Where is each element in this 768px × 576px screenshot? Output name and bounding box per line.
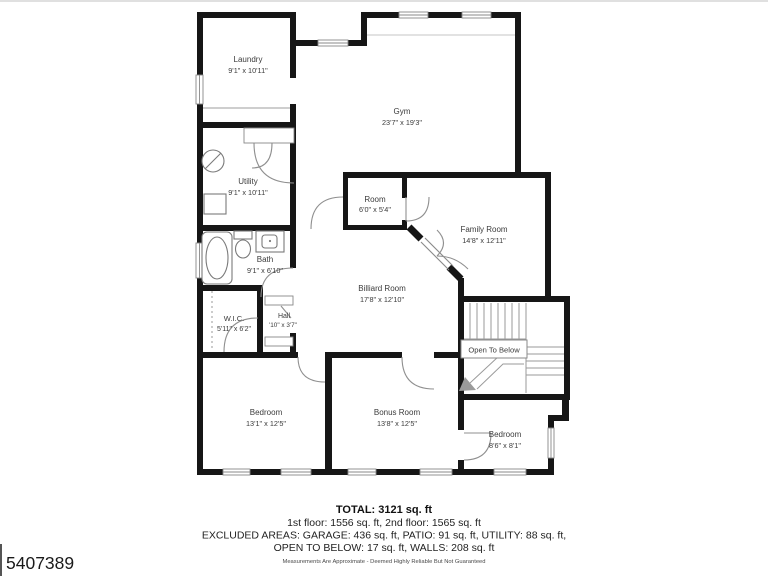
wall-right-jog-horizontal [548,415,569,421]
room-label-bonus: Bonus Room [374,408,421,417]
room-label-hall: Hall [278,313,291,320]
bonus-door-arc [402,357,434,389]
room-dims-bedroom-left: 13'1" x 12'5" [246,419,286,428]
wall-gym-bottom [343,172,515,178]
wall-room-bottom [343,225,407,230]
wall-bath-bottom [197,285,263,291]
wall-diagonal-lower [449,267,461,279]
toilet-bowl [236,240,251,258]
room-label-bedroom-left: Bedroom [250,408,283,417]
hall-opening-top [265,296,293,305]
wall-family-bottom [458,296,570,302]
room-label-bedroom-right: Bedroom [489,430,522,439]
mls-number: 5407389 [6,553,74,573]
window [420,469,452,475]
toilet-tank [234,231,252,239]
sink-drain [269,240,271,242]
walls [197,12,570,475]
room-label-family: Family Room [460,225,507,234]
bedroomright-door-arc [464,433,491,460]
room-label-laundry: Laundry [234,55,263,64]
wall-bedroomright-top [458,394,570,400]
room-label-gym: Gym [394,107,411,116]
wall-wic-right [257,285,263,358]
hall-opening-bottom [265,337,293,346]
room-dims-wic: 5'11" x 6'2" [217,326,251,333]
wall-billiard-bottom-mid [325,352,402,358]
diagonal-door-track-1 [421,242,449,270]
room-door-arc [406,197,429,221]
window [196,75,203,104]
wall-billiard-bottom-left [197,352,298,358]
room-dims-bath: 9'1" x 6'10" [247,266,283,275]
window [348,469,376,475]
window [548,428,554,458]
top-edge-line [0,0,768,2]
window [318,40,348,46]
wall-family-right [545,172,551,302]
room-dims-hall: '10" x 3'7" [269,322,297,329]
wall-gym-right [515,12,521,178]
diagonal-door-track-2 [425,238,453,266]
room-label-room: Room [364,195,386,204]
wall-bedroom-bonus-divider [325,352,332,475]
left-edge-line [0,544,2,576]
wall-laundry-top [197,12,296,18]
room-dims-room: 6'0" x 5'4" [359,205,391,214]
disclaimer-text: Measurements Are Approximate - Deemed Hi… [283,559,486,565]
wall-gym-top [361,12,521,18]
diagonal-door-arc-1 [437,230,444,256]
wall-room-right-upper [402,172,407,198]
window [494,469,526,475]
room-dims-billiard: 17'8" x 12'10" [360,295,404,304]
room-dims-bedroom-right: 8'6" x 8'1" [489,441,521,450]
window [281,469,311,475]
utility-alcove [244,128,294,143]
summary-excluded-1: EXCLUDED AREAS: GARAGE: 436 sq. ft, PATI… [202,530,566,542]
wall-room-left [343,172,348,230]
utility-appliance [204,194,226,214]
room-dims-family: 14'8" x 12'11" [462,236,506,245]
window [462,12,491,18]
window [399,12,428,18]
area-summary: TOTAL: 3121 sq. ft 1st floor: 1556 sq. f… [202,504,566,565]
wall-utility-top [197,122,296,128]
room-label-billiard: Billiard Room [358,284,406,293]
window [223,469,250,475]
room-dims-bonus: 13'8" x 12'5" [377,419,417,428]
open-to-below-label: Open To Below [468,346,520,355]
bathtub-basin [206,237,228,279]
bedroomleft-door-arc [298,357,325,382]
room-dims-gym: 23'7" x 19'3" [382,118,422,127]
wall-stair-right [564,296,570,400]
room-label-bath: Bath [257,255,273,264]
room-dims-laundry: 9'1" x 10'11" [228,66,268,75]
room-label-utility: Utility [238,177,258,186]
floor-plan-drawing: Laundry 9'1" x 10'11" Gym 23'7" x 19'3" … [0,0,768,576]
wall-stair-left-lower [458,460,464,475]
summary-floors: 1st floor: 1556 sq. ft, 2nd floor: 1565 … [287,517,481,529]
wall-laundry-right-upper [290,12,296,78]
wall-bath-top [197,225,296,231]
utility-door-arc-right [254,143,294,183]
room-label-wic: W.I.C. [224,314,244,323]
floor-plan-page: Laundry 9'1" x 10'11" Gym 23'7" x 19'3" … [0,0,768,576]
summary-excluded-2: OPEN TO BELOW: 17 sq. ft, WALLS: 208 sq.… [274,542,495,554]
summary-total: TOTAL: 3121 sq. ft [336,504,433,516]
room-dims-utility: 9'1" x 10'11" [228,188,268,197]
billiard-gym-door-arc [311,197,343,229]
wic-door-arc [224,318,258,352]
wall-diagonal-upper [409,227,421,239]
